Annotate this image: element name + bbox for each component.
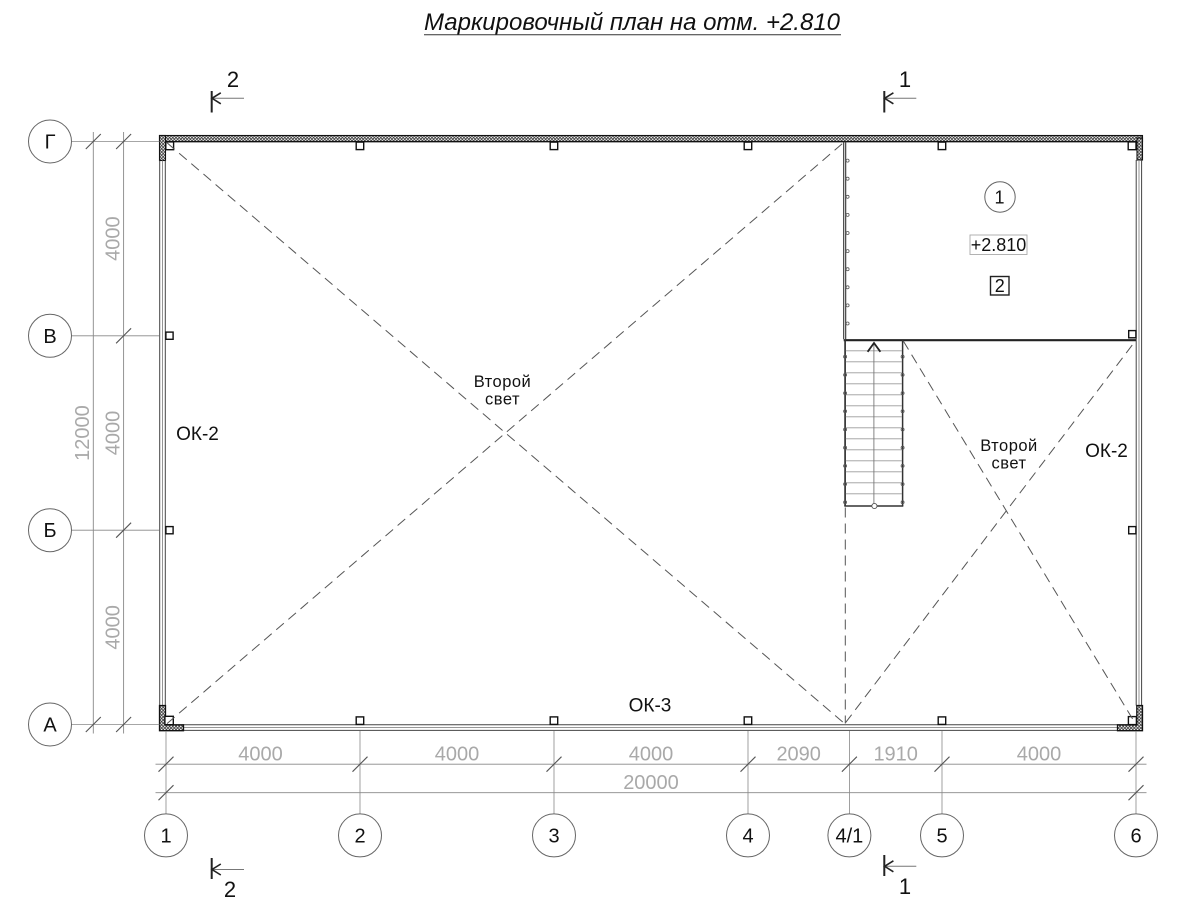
svg-text:5: 5 — [936, 825, 947, 847]
svg-text:Второй: Второй — [980, 437, 1038, 455]
svg-text:1: 1 — [899, 874, 911, 899]
svg-text:1: 1 — [899, 67, 911, 92]
svg-text:Б: Б — [43, 520, 56, 542]
svg-text:2: 2 — [224, 877, 236, 900]
svg-text:1: 1 — [160, 825, 171, 847]
svg-text:4000: 4000 — [1017, 744, 1062, 766]
svg-text:А: А — [43, 715, 57, 737]
svg-text:4/1: 4/1 — [835, 825, 863, 847]
svg-text:4000: 4000 — [238, 744, 283, 766]
svg-text:2: 2 — [354, 825, 365, 847]
svg-text:свет: свет — [991, 455, 1026, 473]
svg-text:12000: 12000 — [72, 405, 94, 461]
svg-text:2: 2 — [995, 276, 1005, 296]
svg-text:Второй: Второй — [474, 373, 532, 391]
svg-text:4000: 4000 — [102, 216, 124, 261]
svg-text:4000: 4000 — [435, 744, 480, 766]
svg-text:4000: 4000 — [102, 605, 124, 650]
svg-text:4000: 4000 — [629, 744, 674, 766]
svg-text:2090: 2090 — [776, 744, 821, 766]
svg-text:ОК-3: ОК-3 — [629, 696, 672, 717]
svg-text:В: В — [43, 326, 56, 348]
svg-text:4: 4 — [742, 825, 753, 847]
svg-text:20000: 20000 — [623, 772, 679, 794]
svg-text:3: 3 — [548, 825, 559, 847]
svg-text:свет: свет — [485, 391, 520, 409]
svg-text:ОК-2: ОК-2 — [1085, 441, 1128, 462]
svg-text:4000: 4000 — [102, 411, 124, 456]
svg-text:1910: 1910 — [873, 744, 918, 766]
svg-text:1: 1 — [994, 187, 1004, 207]
svg-text:+2.810: +2.810 — [971, 235, 1027, 255]
svg-text:6: 6 — [1130, 825, 1141, 847]
svg-text:2: 2 — [227, 67, 239, 92]
svg-text:ОК-2: ОК-2 — [176, 424, 219, 445]
svg-text:Г: Г — [45, 132, 56, 154]
svg-text:Маркировочный план на отм. +2.: Маркировочный план на отм. +2.810 — [424, 9, 841, 36]
